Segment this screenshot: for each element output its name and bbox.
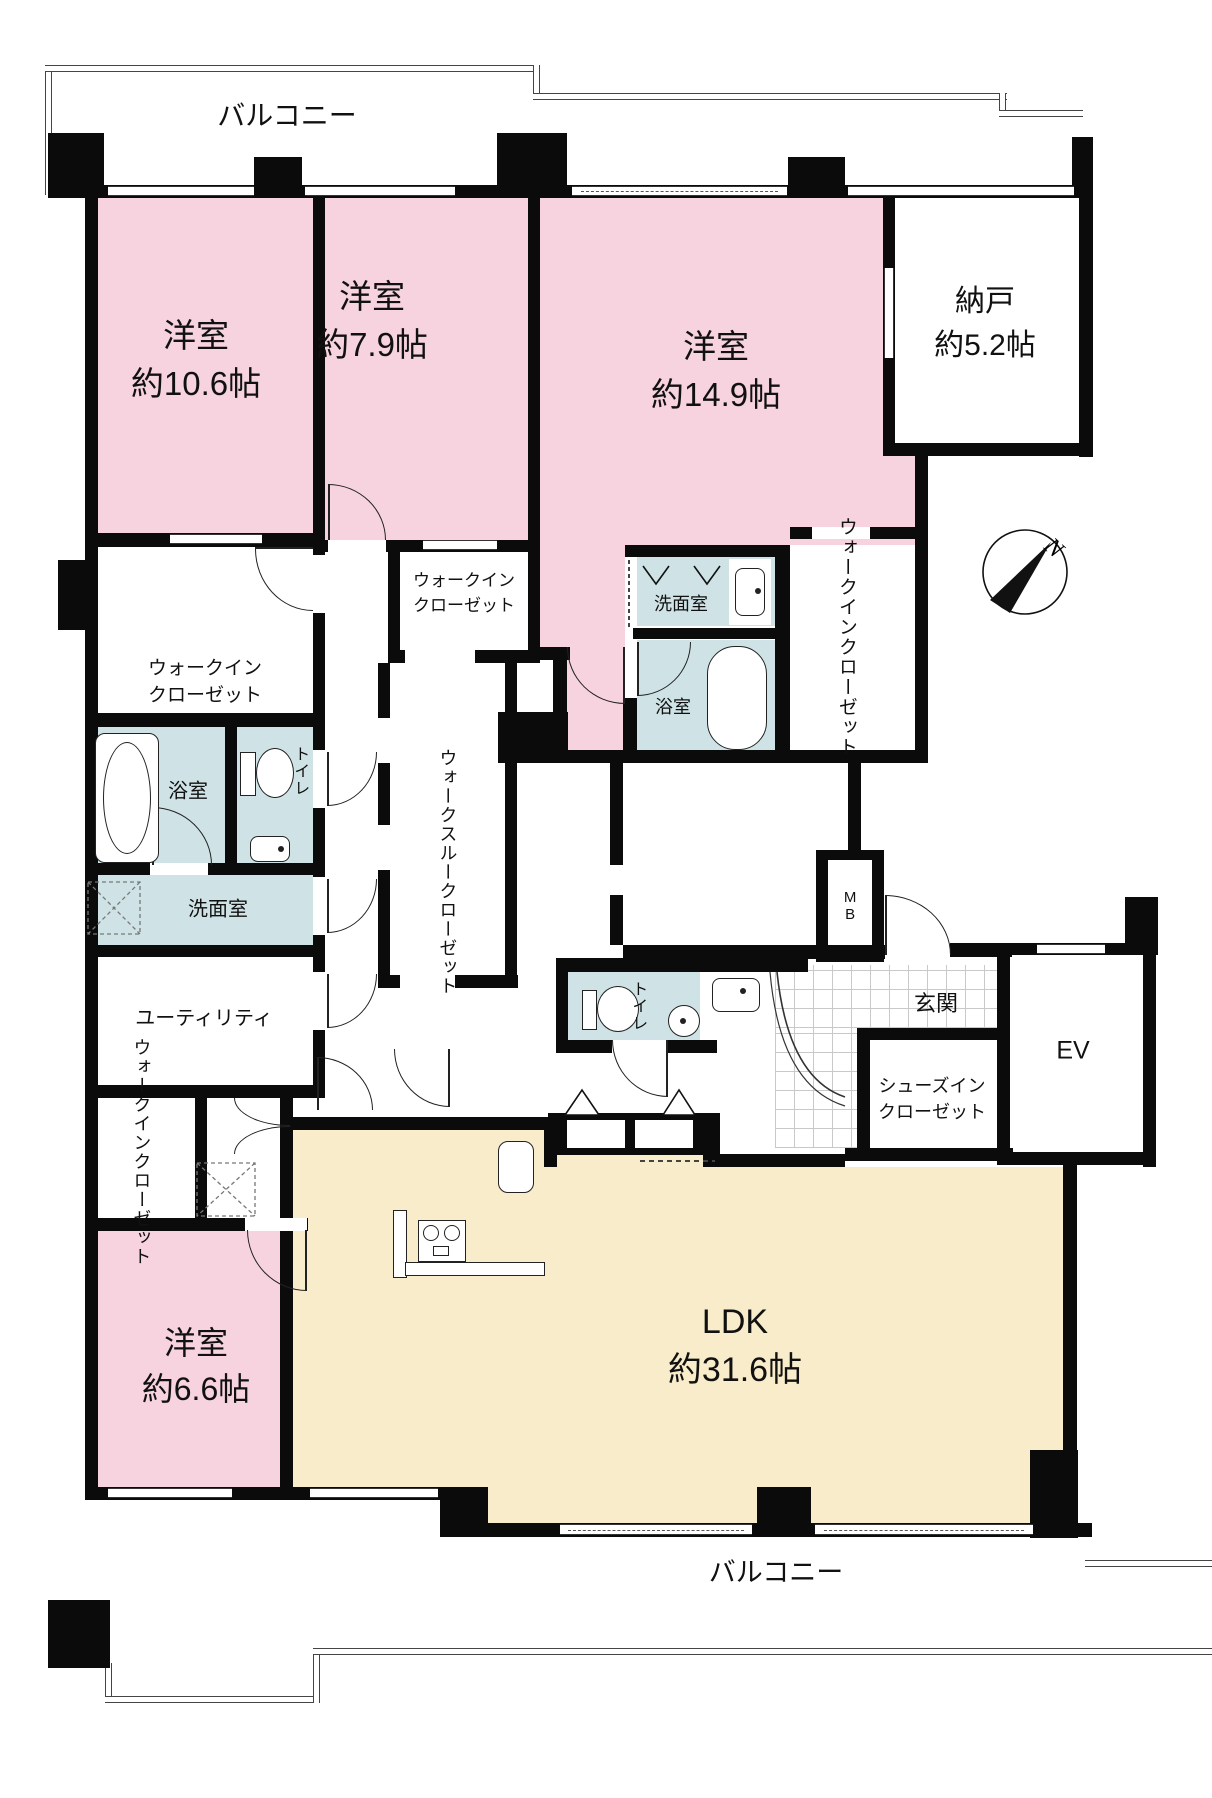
balcony-rail	[999, 110, 1083, 117]
washroom-left-label: 洗面室	[188, 893, 248, 922]
door-arc	[255, 549, 313, 611]
door-arc	[394, 1049, 450, 1107]
bathtub-icon	[103, 742, 151, 854]
ldk-label: LDK約31.6帖	[668, 1303, 802, 1391]
compass-n-label: N	[1038, 532, 1070, 564]
kitchen-counter	[405, 1262, 545, 1276]
stove-burner-icon	[444, 1225, 460, 1241]
elevator-window	[1037, 944, 1105, 954]
entrance-label: 玄関	[914, 986, 958, 1018]
window	[560, 1524, 752, 1535]
toilet-icon	[240, 752, 256, 796]
closet-door-arc	[234, 1098, 290, 1126]
bifold-door-icon	[565, 1090, 695, 1115]
window	[572, 186, 787, 196]
bath-left-label: 浴室	[168, 775, 208, 804]
door-arc	[327, 974, 377, 1028]
room-14-9-label: 洋室約14.9帖	[651, 320, 781, 416]
balcony-bottom-label: バルコニー	[709, 1551, 843, 1590]
window	[848, 186, 1074, 196]
stove-grill-icon	[433, 1246, 449, 1256]
walk-through-closet-label: ウォークスルークローゼット	[437, 749, 458, 996]
balcony-rail	[313, 1648, 320, 1703]
entrance-tile-floor	[775, 965, 1000, 1028]
wic-bottom-label: ウォークインクローゼット	[131, 1038, 152, 1266]
balcony-rail	[45, 65, 540, 72]
balcony-rail	[105, 1696, 320, 1703]
door-arc	[612, 1040, 668, 1097]
window	[108, 1488, 232, 1498]
toilet-icon	[256, 748, 294, 798]
room-10-6-label: 洋室約10.6帖	[131, 309, 261, 405]
kitchen-sink-icon	[498, 1141, 534, 1193]
window	[815, 1524, 1033, 1535]
washroom-right-label: 洗面室	[654, 590, 708, 616]
storage-5-2-label: 納戸約5.2帖	[934, 276, 1036, 364]
balcony-rail	[313, 1648, 1212, 1655]
room-western-14-9	[540, 545, 625, 647]
room-7-9-label: 洋室約7.9帖	[316, 270, 428, 366]
door-arc	[327, 879, 377, 933]
room-western-7-9	[325, 198, 528, 540]
hand-basin-icon	[250, 836, 290, 862]
window	[310, 1488, 438, 1498]
door-arc	[317, 1057, 373, 1110]
elevator-label: EV	[1056, 1037, 1089, 1066]
door-arc	[327, 752, 377, 806]
balcony-top-label: バルコニー	[217, 94, 356, 134]
wic-right-label: ウォークインクローゼット	[835, 517, 857, 757]
sliding-door	[423, 540, 497, 550]
entrance-tile-floor	[775, 1028, 857, 1148]
window	[108, 186, 254, 196]
meter-box-label: MB	[841, 889, 858, 923]
floor-plan: N バルコニー バルコニー 洋室約10.6帖	[0, 0, 1212, 1798]
balcony-rail	[533, 93, 1007, 100]
sliding-door	[884, 268, 894, 358]
compass-icon: N	[983, 530, 1070, 614]
toilet-center-label: トイレ	[628, 981, 646, 1032]
shoes-in-closet-label: シューズインクローゼット	[878, 1072, 986, 1124]
bathtub-icon	[707, 646, 767, 750]
toilet-icon	[582, 990, 597, 1030]
bath-right-label: 浴室	[655, 693, 691, 719]
closet-door-arc	[234, 1126, 290, 1154]
window	[305, 186, 455, 196]
wic-top-label: ウォークインクローゼット	[413, 566, 515, 616]
balcony-rail	[1085, 1560, 1212, 1567]
room-6-6-label: 洋室約6.6帖	[142, 1318, 251, 1410]
entrance-door-arc	[885, 895, 951, 955]
ldk-room	[293, 1130, 445, 1487]
wic-left-label: ウォークインクローゼット	[148, 653, 262, 707]
utility-label: ユーティリティ	[135, 1002, 273, 1031]
washbasin-icon	[712, 978, 760, 1012]
sliding-door	[170, 534, 262, 544]
toilet-left-label: トイレ	[290, 746, 308, 797]
stove-burner-icon	[423, 1225, 439, 1241]
